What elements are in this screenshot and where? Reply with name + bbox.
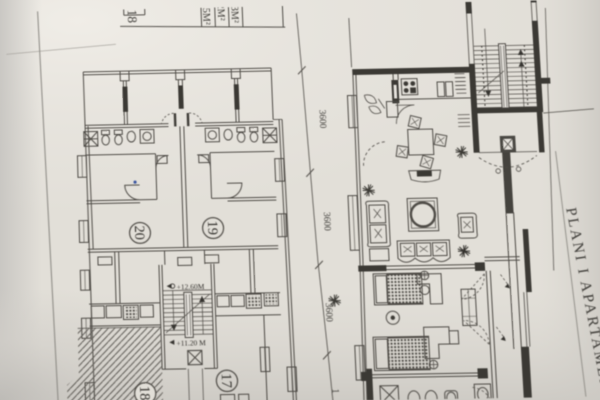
svg-text:+11.20 M: +11.20 M bbox=[176, 339, 206, 348]
svg-text:1: 1 bbox=[330, 389, 341, 394]
svg-text:5M²: 5M² bbox=[200, 8, 212, 25]
svg-text:17: 17 bbox=[217, 373, 233, 388]
svg-text:3600: 3600 bbox=[322, 212, 333, 231]
svg-text:3600: 3600 bbox=[317, 110, 328, 129]
svg-text:19: 19 bbox=[204, 220, 220, 235]
svg-text:18: 18 bbox=[136, 386, 152, 400]
svg-text:20: 20 bbox=[131, 225, 147, 240]
svg-text:PLANI I APARTAMEN: PLANI I APARTAMEN bbox=[562, 207, 600, 393]
